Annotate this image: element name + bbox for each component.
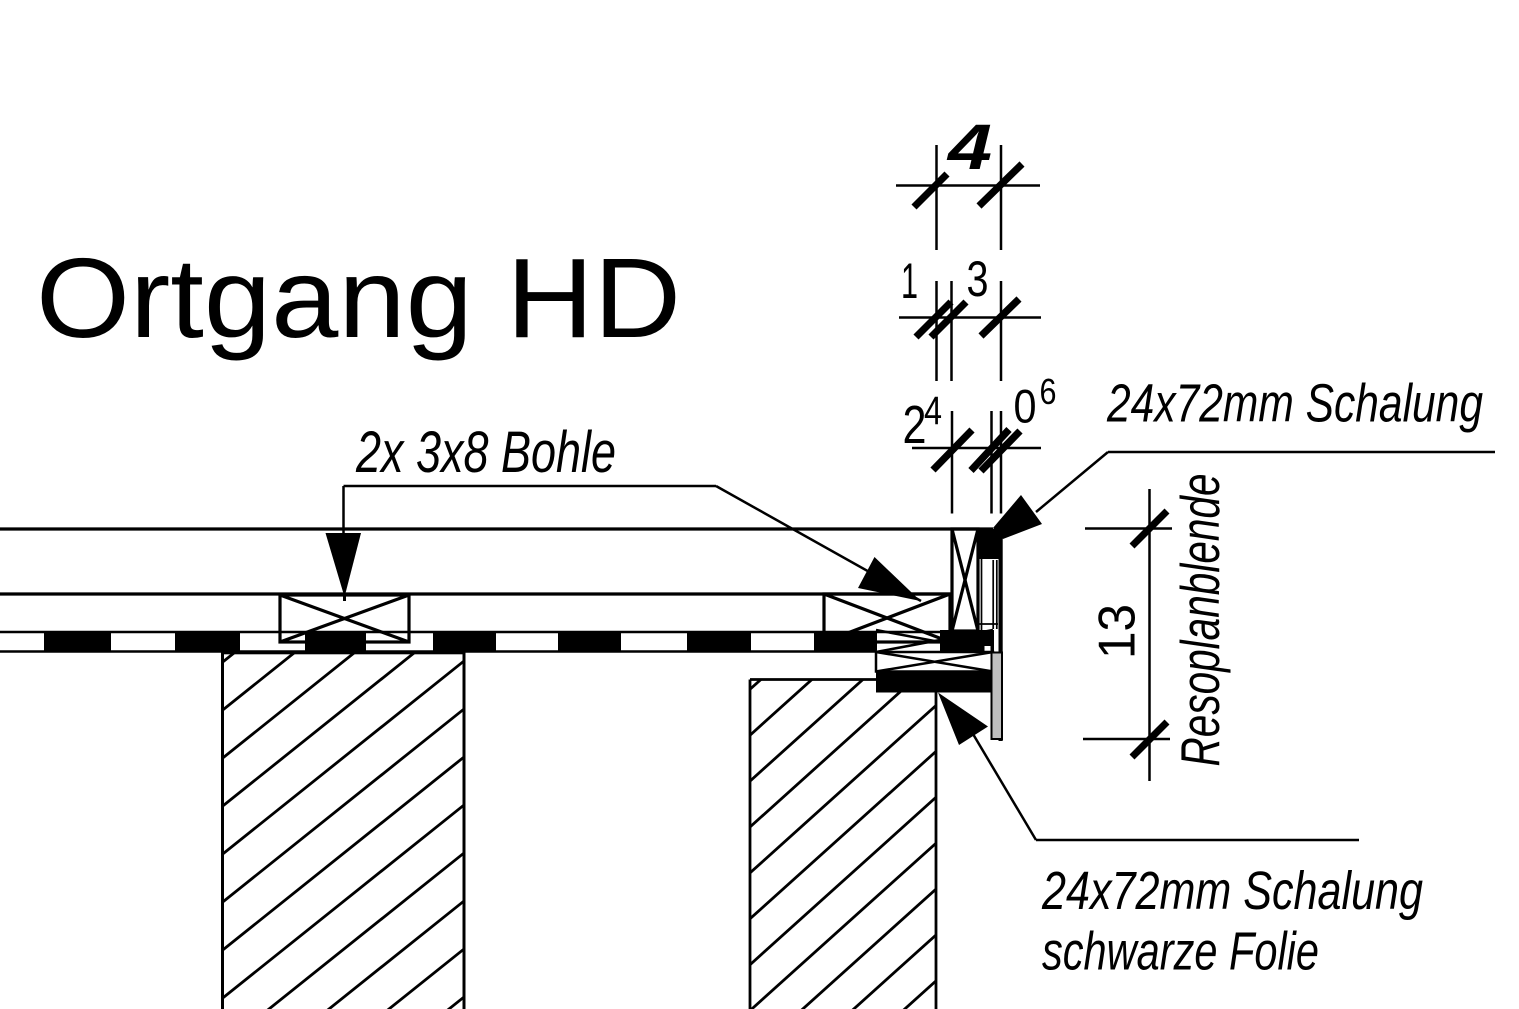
svg-text:6: 6 (1040, 371, 1057, 412)
svg-text:3: 3 (967, 251, 989, 307)
svg-text:2x 3x8 Bohle: 2x 3x8 Bohle (355, 420, 616, 485)
svg-text:0: 0 (1014, 380, 1037, 433)
svg-text:schwarze Folie: schwarze Folie (1042, 922, 1319, 982)
svg-text:24x72mm Schalung: 24x72mm Schalung (1106, 374, 1483, 434)
svg-text:4: 4 (946, 111, 992, 183)
svg-text:24x72mm Schalung: 24x72mm Schalung (1041, 861, 1423, 921)
svg-text:Ortgang HD: Ortgang HD (36, 235, 681, 361)
svg-text:Resoplanblende: Resoplanblende (1169, 474, 1231, 767)
svg-text:2: 2 (903, 395, 927, 455)
svg-text:4: 4 (924, 389, 942, 433)
svg-text:13: 13 (1089, 604, 1147, 659)
svg-text:1: 1 (901, 253, 918, 309)
